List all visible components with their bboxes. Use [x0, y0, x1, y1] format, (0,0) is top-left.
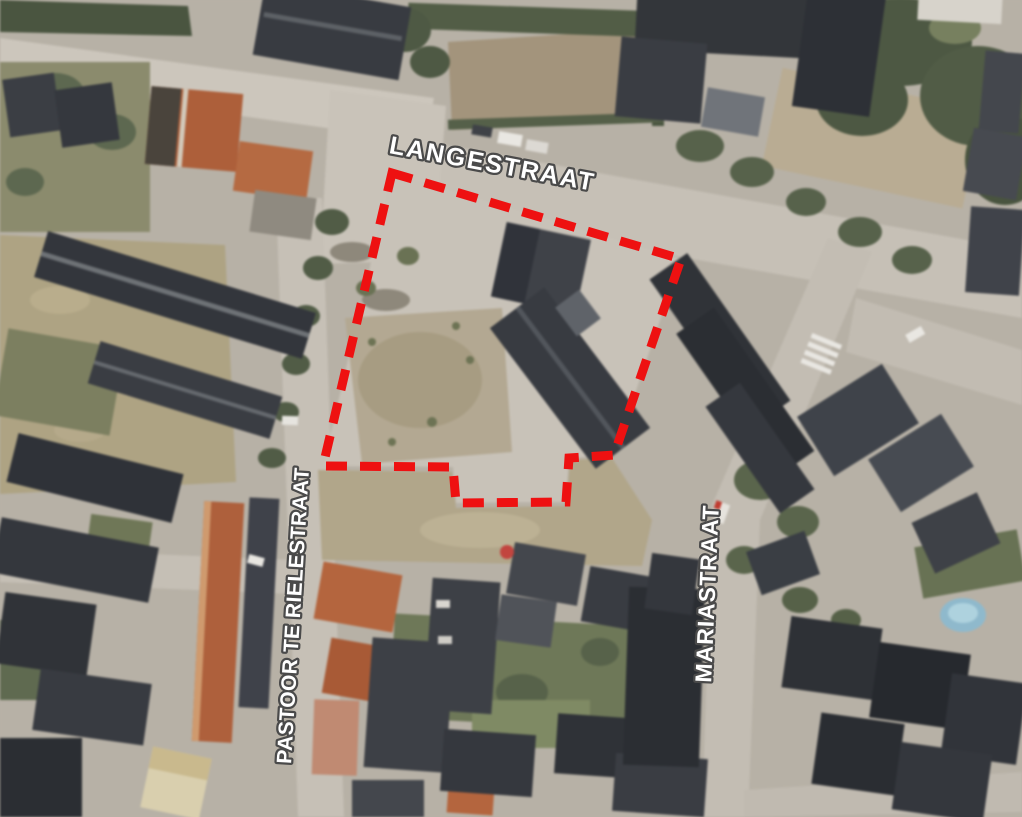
dirt-patch-core [358, 332, 482, 428]
building-roof [440, 729, 536, 797]
building-roof [2, 73, 62, 138]
white-car [436, 600, 450, 608]
hedge [0, 0, 192, 36]
barn-roof [615, 36, 708, 123]
building-roof [979, 50, 1022, 133]
scrub-bush [452, 322, 460, 330]
scene-layer [0, 0, 1022, 817]
tree [892, 246, 932, 274]
tree [410, 46, 450, 78]
tree [6, 168, 44, 196]
tree-shadow [330, 242, 374, 262]
building-roof [54, 82, 120, 148]
building-roof [495, 594, 557, 647]
building-roof [0, 592, 97, 676]
tree [782, 587, 818, 613]
tree [730, 157, 774, 187]
scrub-bush [388, 438, 396, 446]
white-car [438, 636, 452, 644]
light-gable-house [140, 746, 212, 817]
tree [397, 247, 419, 265]
shed-roof [249, 190, 316, 240]
tree [786, 188, 826, 216]
building-roof [811, 713, 904, 796]
scrub-bush [368, 338, 376, 346]
tree [303, 256, 333, 280]
building-roof [644, 553, 699, 615]
building-roof [0, 738, 82, 817]
building-roof [781, 616, 882, 700]
scrub-bush [427, 417, 437, 427]
building-roof [892, 742, 993, 817]
aerial-map: LANGESTRAAT PASTOOR TE RIELESTRAAT MARIA… [0, 0, 1022, 817]
aerial-map-screenshot: LANGESTRAAT PASTOOR TE RIELESTRAAT MARIA… [0, 0, 1022, 817]
building-roof [352, 780, 424, 817]
orange-house [145, 86, 243, 172]
white-car [282, 416, 298, 426]
red-object [500, 545, 514, 559]
swimming-pool-water [948, 603, 978, 623]
tree [581, 638, 619, 666]
field-patch [420, 512, 540, 548]
tree [258, 448, 286, 468]
building-roof [423, 578, 500, 714]
building-roof [965, 206, 1022, 296]
tree [838, 217, 882, 247]
pink-terrace-roof [312, 699, 360, 776]
orange-roof [233, 141, 313, 201]
tree [315, 209, 349, 235]
tree [676, 130, 724, 162]
scrub-bush [466, 356, 474, 364]
